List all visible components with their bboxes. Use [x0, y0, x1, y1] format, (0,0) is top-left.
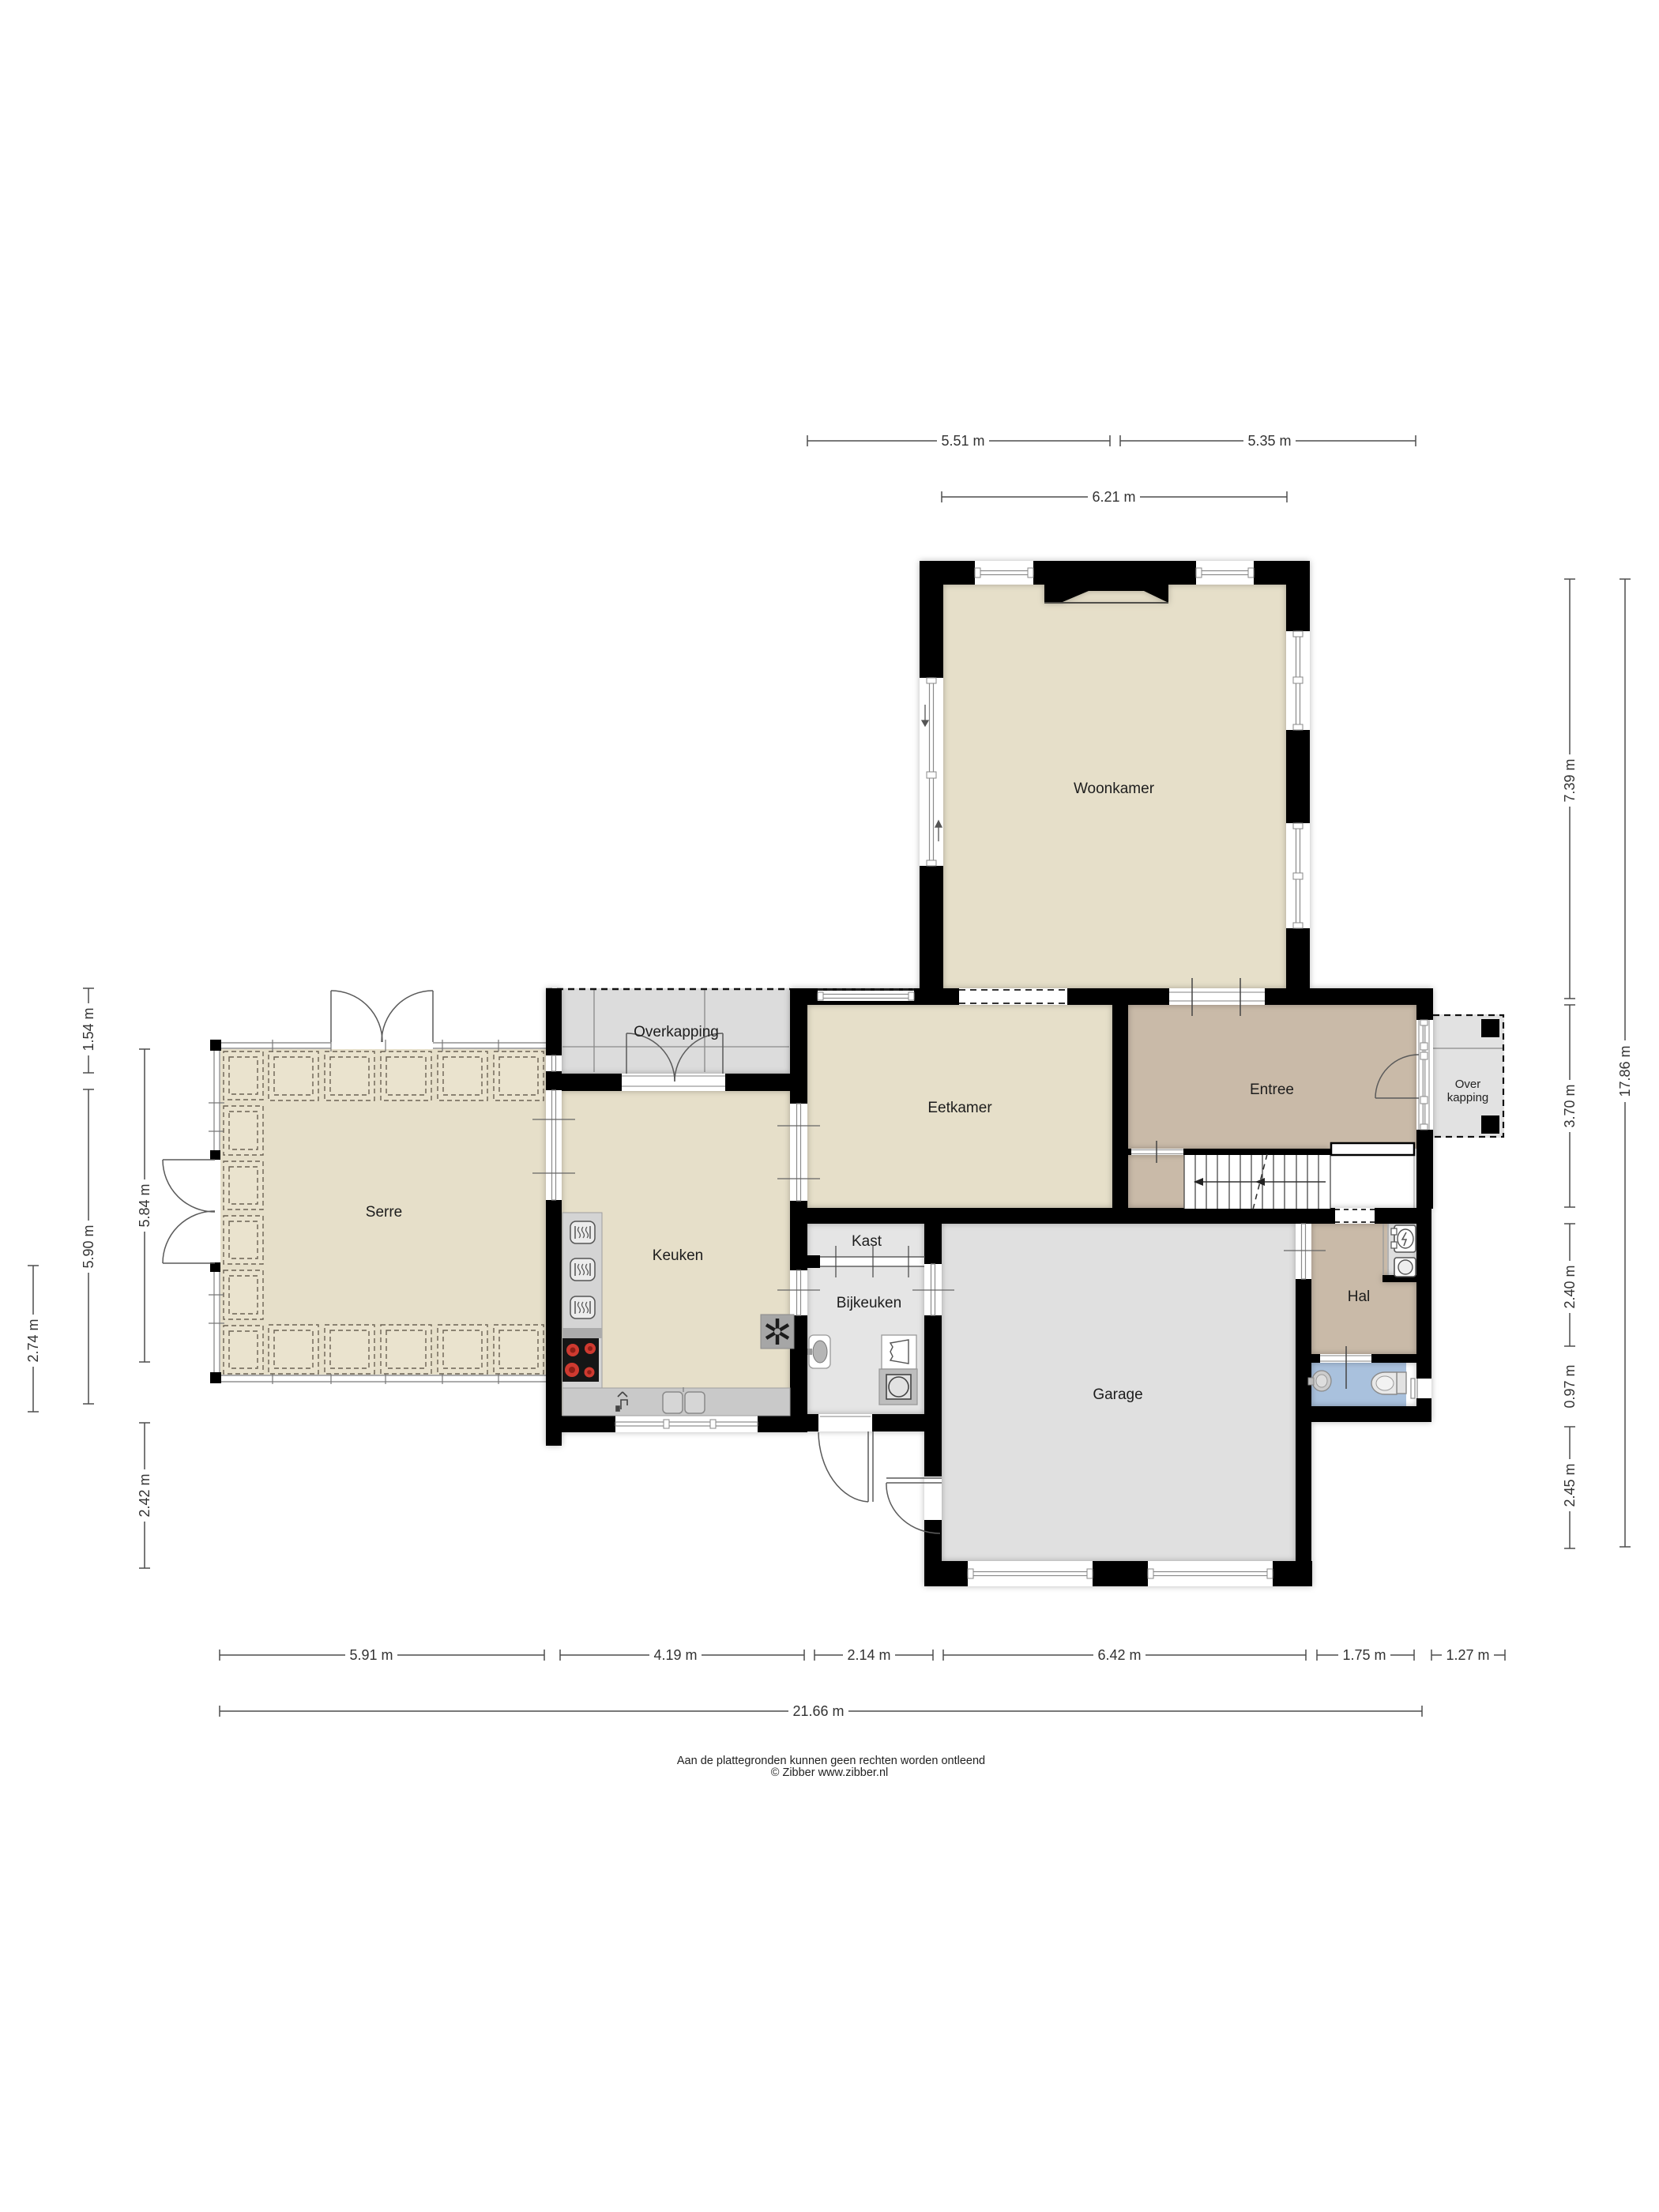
svg-text:Over: Over: [1455, 1078, 1481, 1091]
svg-text:2.40 m: 2.40 m: [1562, 1265, 1578, 1308]
svg-text:Eetkamer: Eetkamer: [927, 1100, 992, 1116]
svg-text:21.66 m: 21.66 m: [792, 1703, 844, 1719]
svg-text:1.75 m: 1.75 m: [1342, 1647, 1386, 1663]
svg-text:5.90 m: 5.90 m: [81, 1224, 96, 1268]
svg-text:7.39 m: 7.39 m: [1562, 758, 1578, 802]
svg-text:kapping: kapping: [1447, 1091, 1489, 1104]
svg-text:5.84 m: 5.84 m: [137, 1183, 152, 1227]
svg-text:5.35 m: 5.35 m: [1247, 433, 1291, 449]
svg-text:Keuken: Keuken: [653, 1247, 703, 1264]
svg-text:17.86 m: 17.86 m: [1617, 1045, 1633, 1097]
svg-text:5.51 m: 5.51 m: [941, 433, 984, 449]
svg-text:Overkapping: Overkapping: [634, 1024, 719, 1040]
svg-text:2.74 m: 2.74 m: [25, 1319, 41, 1362]
svg-text:Garage: Garage: [1093, 1386, 1142, 1403]
svg-text:5.91 m: 5.91 m: [349, 1647, 393, 1663]
svg-text:Serre: Serre: [366, 1204, 402, 1221]
svg-text:2.14 m: 2.14 m: [847, 1647, 890, 1663]
svg-text:Hal: Hal: [1348, 1288, 1371, 1305]
svg-text:Woonkamer: Woonkamer: [1074, 781, 1155, 797]
svg-text:4.19 m: 4.19 m: [653, 1647, 697, 1663]
svg-text:© Zibber www.zibber.nl: © Zibber www.zibber.nl: [771, 1766, 889, 1779]
svg-text:1.54 m: 1.54 m: [81, 1007, 96, 1051]
svg-text:Kast: Kast: [852, 1233, 882, 1250]
svg-text:1.27 m: 1.27 m: [1446, 1647, 1489, 1663]
svg-text:Entree: Entree: [1250, 1082, 1294, 1098]
svg-text:6.21 m: 6.21 m: [1092, 489, 1135, 505]
svg-text:Bijkeuken: Bijkeuken: [837, 1295, 901, 1311]
svg-text:2.45 m: 2.45 m: [1562, 1463, 1578, 1507]
svg-text:2.42 m: 2.42 m: [137, 1473, 152, 1517]
svg-text:3.70 m: 3.70 m: [1562, 1084, 1578, 1127]
svg-text:0.97 m: 0.97 m: [1562, 1364, 1578, 1408]
svg-text:Aan de plattegronden kunnen ge: Aan de plattegronden kunnen geen rechten…: [677, 1755, 985, 1767]
svg-text:6.42 m: 6.42 m: [1097, 1647, 1141, 1663]
